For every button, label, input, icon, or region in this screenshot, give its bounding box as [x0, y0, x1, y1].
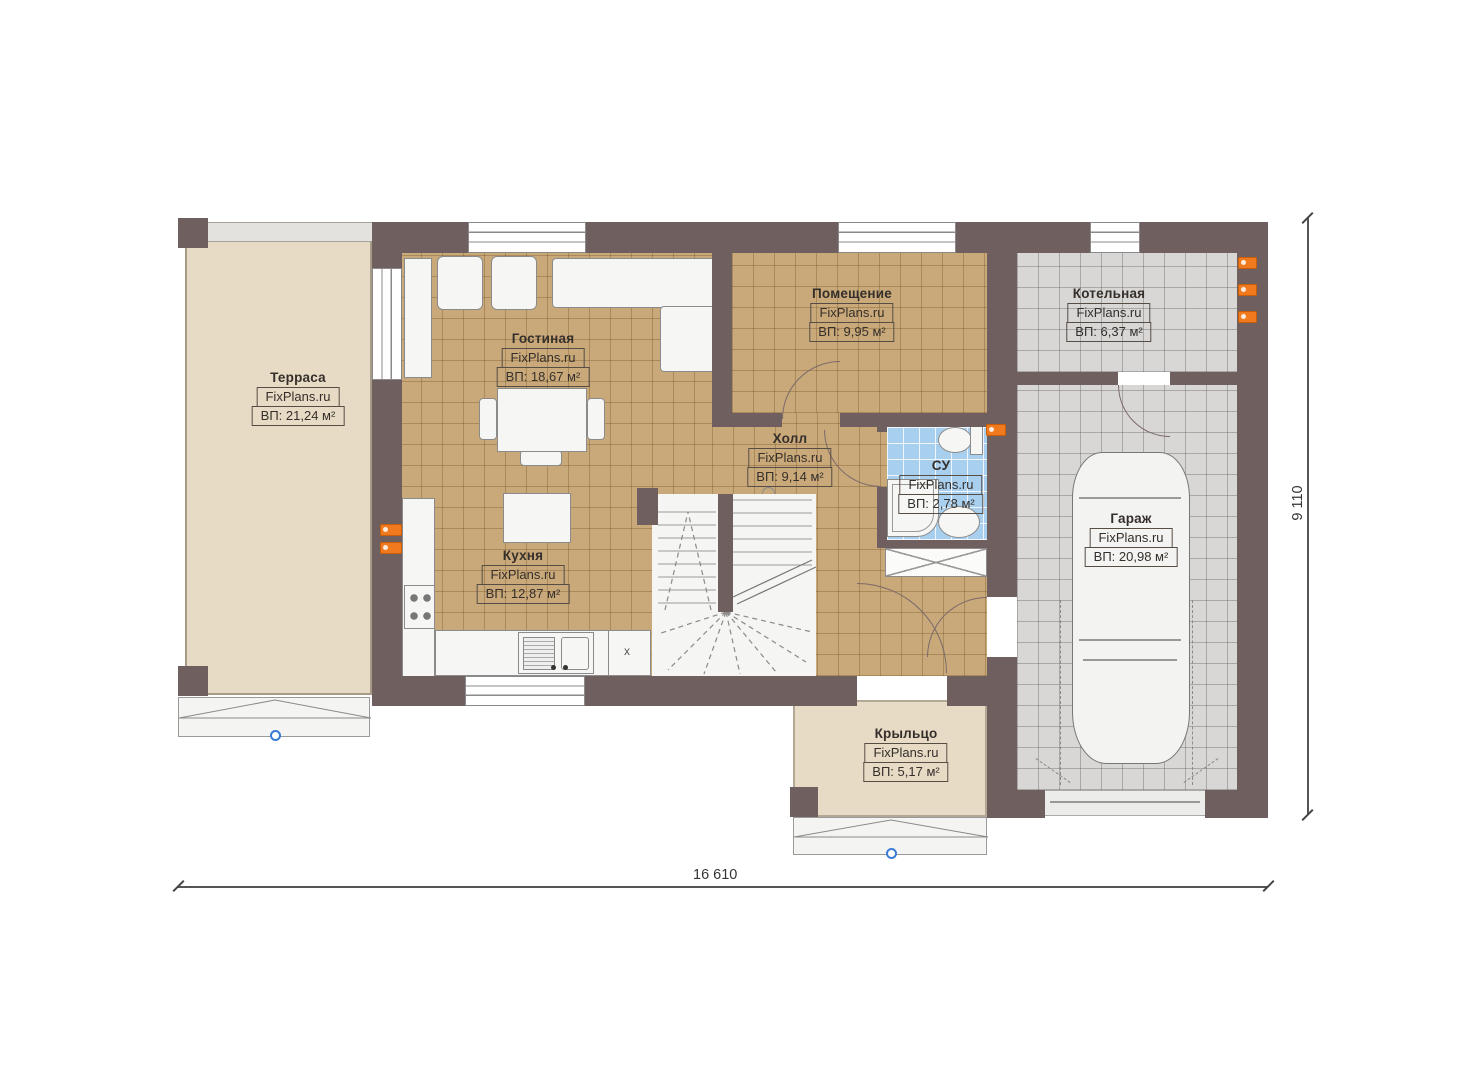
room-label-wc: СУ FixPlans.ru ВП: 2,78 м² — [898, 458, 983, 514]
wall-room-bottom — [712, 413, 782, 427]
terrace-top-beam — [205, 222, 375, 242]
room-name: Гостиная — [497, 331, 590, 346]
wall-bath-bottom — [877, 540, 987, 548]
room-name: Крыльцо — [863, 726, 948, 741]
toilet-bowl — [938, 427, 972, 453]
socket-icon — [380, 524, 402, 536]
room-name: СУ — [898, 458, 983, 473]
room-label-living: Гостиная FixPlans.ru ВП: 18,67 м² — [497, 331, 590, 387]
room-label-hall: Холл FixPlans.ru ВП: 9,14 м² — [747, 431, 832, 487]
watermark: FixPlans.ru — [748, 448, 831, 468]
room-label-kitchen: Кухня FixPlans.ru ВП: 12,87 м² — [477, 548, 570, 604]
sink-tap — [563, 665, 568, 670]
parking-guide-line — [1060, 600, 1061, 785]
room-name: Помещение — [809, 286, 894, 301]
sink-drainboard — [523, 637, 555, 670]
watermark: FixPlans.ru — [1067, 303, 1150, 323]
terrace-steps-marker — [270, 730, 281, 741]
room-name: Терраса — [252, 370, 345, 385]
room-name: Гараж — [1085, 511, 1178, 526]
watermark: FixPlans.ru — [256, 387, 339, 407]
wall-living-room-divider — [712, 253, 732, 425]
room-area: ВП: 12,87 м² — [477, 584, 570, 604]
wall-bottom — [585, 676, 857, 706]
terrace-floor — [185, 225, 372, 695]
parking-guide-line — [1192, 600, 1193, 785]
window-room — [838, 222, 956, 253]
dimension-line-vertical — [1307, 218, 1309, 815]
staircase — [652, 494, 816, 676]
stair-wall-post — [637, 488, 658, 525]
room-area: ВП: 9,95 м² — [809, 322, 894, 342]
wall-bath-left — [877, 487, 887, 543]
window-living — [468, 222, 586, 253]
socket-icon — [1238, 257, 1257, 269]
room-name: Котельная — [1066, 286, 1151, 301]
floor-plan: x — [0, 0, 1474, 1080]
wall-room-bottom — [840, 413, 987, 427]
room-label-porch: Крыльцо FixPlans.ru ВП: 5,17 м² — [863, 726, 948, 782]
watermark: FixPlans.ru — [501, 348, 584, 368]
stair-center-wall — [718, 494, 733, 612]
room-name: Холл — [747, 431, 832, 446]
room-label-terrace: Терраса FixPlans.ru ВП: 21,24 м² — [252, 370, 345, 426]
car-windshield-line — [1079, 497, 1181, 499]
room-area: ВП: 2,78 м² — [898, 494, 983, 514]
room-label-garage: Гараж FixPlans.ru ВП: 20,98 м² — [1085, 511, 1178, 567]
room-label-boiler: Котельная FixPlans.ru ВП: 6,37 м² — [1066, 286, 1151, 342]
garage-post-left — [1013, 790, 1045, 818]
dining-table — [497, 388, 587, 452]
room-area: ВП: 9,14 м² — [747, 467, 832, 487]
watermark: FixPlans.ru — [481, 565, 564, 585]
stove — [404, 585, 435, 629]
socket-icon — [986, 424, 1006, 436]
socket-icon — [1238, 284, 1257, 296]
terrace-glass-door — [372, 268, 402, 380]
wall-boiler-bottom — [1017, 372, 1118, 385]
dining-chair — [587, 398, 605, 440]
sink-tap — [551, 665, 556, 670]
room-area: ВП: 5,17 м² — [863, 762, 948, 782]
socket-icon — [380, 542, 402, 554]
wall-bath-left — [877, 425, 887, 432]
terrace-post-bottomleft — [178, 666, 208, 696]
sofa-side-section — [660, 306, 718, 372]
dimension-line-horizontal — [178, 886, 1268, 888]
dimension-value-horizontal: 16 610 — [693, 867, 737, 883]
watermark: FixPlans.ru — [810, 303, 893, 323]
socket-icon — [1238, 311, 1257, 323]
kitchen-island — [503, 493, 571, 543]
terrace-post-topleft — [178, 218, 208, 248]
dining-chair — [520, 450, 562, 466]
room-label-room: Помещение FixPlans.ru ВП: 9,95 м² — [809, 286, 894, 342]
room-area: ВП: 18,67 м² — [497, 367, 590, 387]
garage-door — [1043, 790, 1207, 816]
staircase-treads — [652, 494, 816, 676]
porch-steps-marker — [886, 848, 897, 859]
garage-door-line — [1050, 801, 1200, 803]
window-kitchen — [465, 676, 585, 706]
kitchen-sink — [518, 632, 594, 674]
watermark: FixPlans.ru — [1089, 528, 1172, 548]
garage-post-right — [1205, 790, 1238, 818]
watermark: FixPlans.ru — [864, 743, 947, 763]
wall-bottom — [372, 676, 465, 706]
porch-post — [790, 787, 818, 817]
car-trunk-line — [1083, 659, 1177, 661]
dimension-value-vertical: 9 110 — [1290, 473, 1306, 533]
appliance-x-mark: x — [624, 644, 630, 658]
car — [1072, 452, 1190, 764]
car-rearwindow-line — [1079, 639, 1181, 641]
tv-console — [404, 258, 432, 378]
armchair — [491, 256, 537, 310]
room-name: Кухня — [477, 548, 570, 563]
wall-boiler-bottom — [1170, 372, 1237, 385]
armchair — [437, 256, 483, 310]
room-area: ВП: 20,98 м² — [1085, 547, 1178, 567]
room-area: ВП: 21,24 м² — [252, 406, 345, 426]
sofa-top-section — [552, 258, 718, 308]
room-area: ВП: 6,37 м² — [1066, 322, 1151, 342]
wardrobe — [885, 548, 987, 577]
window-boiler — [1090, 222, 1140, 253]
dining-chair — [479, 398, 497, 440]
watermark: FixPlans.ru — [899, 475, 982, 495]
toilet-tank — [970, 424, 983, 455]
